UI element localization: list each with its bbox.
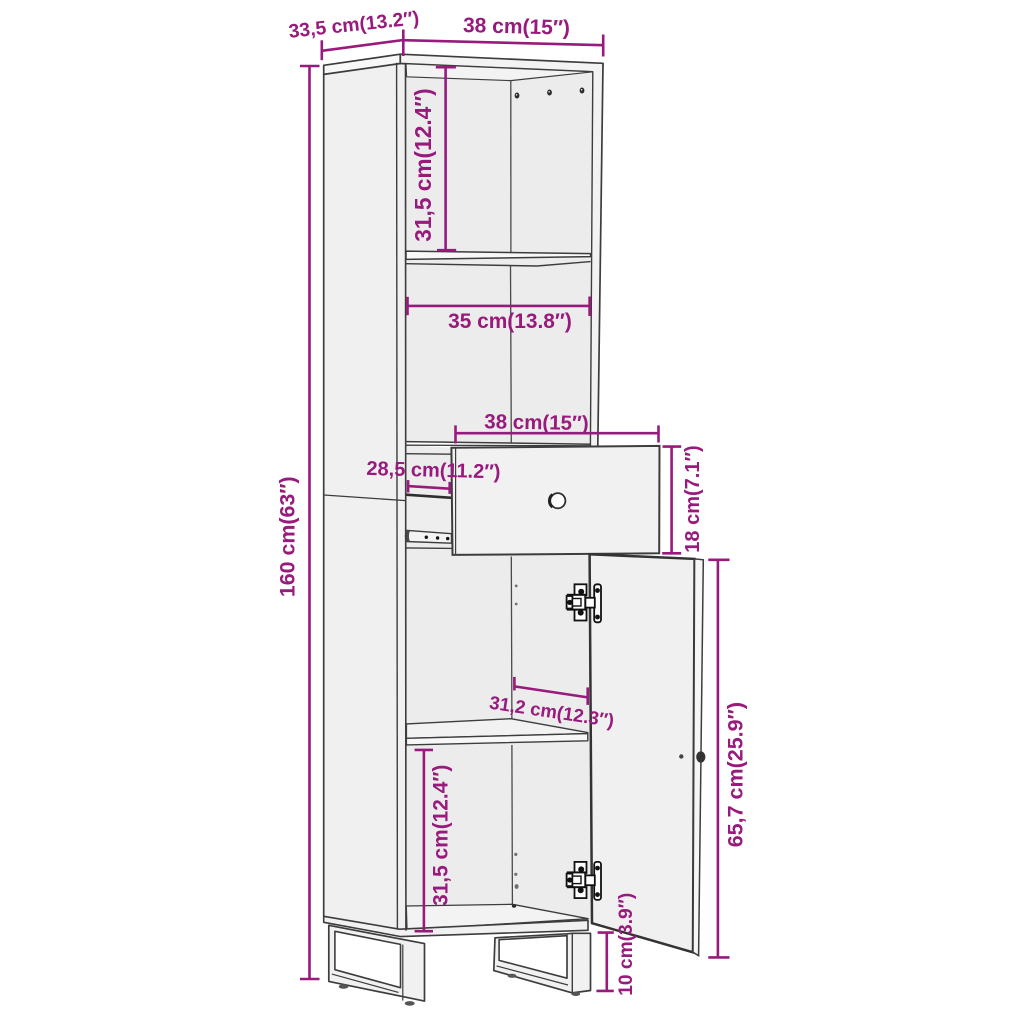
svg-text:38 cm(15″): 38 cm(15″)	[463, 14, 571, 40]
svg-text:28,5 cm(11.2″): 28,5 cm(11.2″)	[366, 458, 501, 484]
svg-text:160 cm(63″): 160 cm(63″)	[275, 476, 299, 597]
svg-text:10 cm(3.9″): 10 cm(3.9″)	[616, 893, 637, 996]
svg-text:35 cm(13.8″): 35 cm(13.8″)	[448, 310, 572, 333]
svg-text:18 cm(7.1″): 18 cm(7.1″)	[682, 445, 704, 552]
svg-text:31,5 cm(12.4″): 31,5 cm(12.4″)	[410, 88, 436, 241]
svg-text:65,7 cm(25.9″): 65,7 cm(25.9″)	[724, 702, 748, 847]
svg-text:31,5 cm(12.4″): 31,5 cm(12.4″)	[430, 765, 453, 906]
svg-text:38 cm(15″): 38 cm(15″)	[484, 410, 589, 435]
